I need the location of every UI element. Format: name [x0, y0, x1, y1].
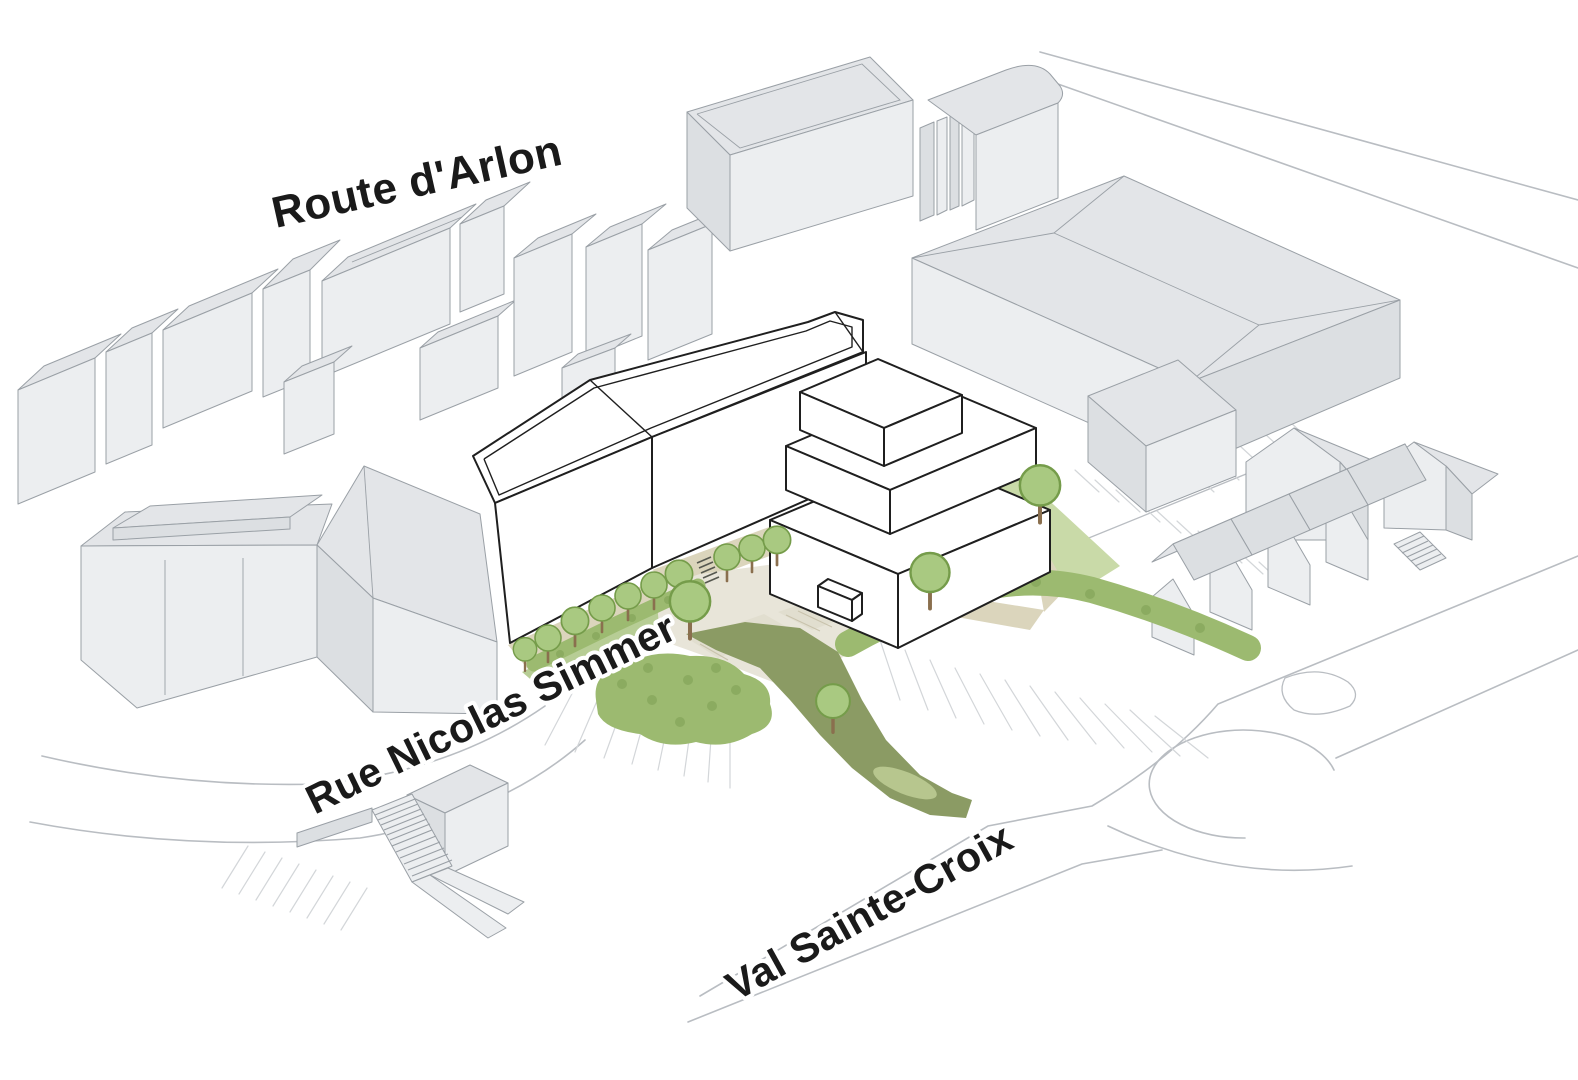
stairs-east [1394, 532, 1446, 570]
traffic-island [1282, 672, 1356, 714]
street-label-val-sainte-croix: Val Sainte-Croix [718, 814, 1020, 1009]
street-label-route-arlon: Route d'Arlon [267, 126, 566, 238]
context-buildings-northwest-row [18, 182, 530, 504]
slope-hatching-southeast-embankment [880, 640, 1208, 758]
site-plan-canvas: Route d'Arlon Rue Nicolas Simmer Val Sai… [0, 0, 1578, 1080]
road-east-edge-lower [1336, 650, 1578, 758]
slope-hatching-stairs-area [222, 846, 367, 930]
roundabout-arc [1149, 730, 1334, 838]
context-building-l-shaped [81, 466, 497, 714]
roundabout-south-edge [1108, 826, 1352, 870]
